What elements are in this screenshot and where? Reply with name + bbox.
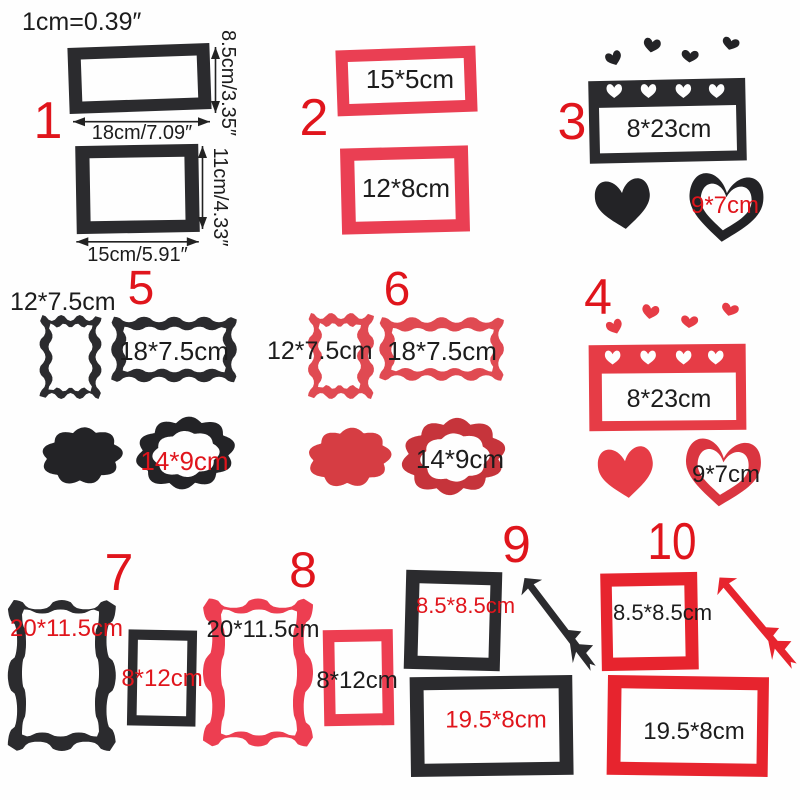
svg-text:10: 10 <box>648 513 697 571</box>
svg-text:8.5cm/3.35″: 8.5cm/3.35″ <box>217 30 239 136</box>
svg-text:8*12cm: 8*12cm <box>121 665 202 692</box>
svg-text:8.5*8.5cm: 8.5*8.5cm <box>613 600 712 625</box>
svg-text:14*9cm: 14*9cm <box>416 444 504 474</box>
svg-text:8*23cm: 8*23cm <box>627 385 712 413</box>
svg-text:19.5*8cm: 19.5*8cm <box>643 718 744 745</box>
svg-text:18cm/7.09″: 18cm/7.09″ <box>92 122 192 144</box>
svg-text:12*8cm: 12*8cm <box>362 173 450 203</box>
svg-text:9*7cm: 9*7cm <box>692 461 760 488</box>
svg-text:15*5cm: 15*5cm <box>366 64 454 94</box>
svg-text:20*11.5cm: 20*11.5cm <box>10 615 123 642</box>
svg-text:12*7.5cm: 12*7.5cm <box>10 288 116 316</box>
svg-text:9: 9 <box>502 516 531 574</box>
svg-text:8: 8 <box>289 542 317 598</box>
svg-text:14*9cm: 14*9cm <box>140 446 228 476</box>
svg-text:8*12cm: 8*12cm <box>316 667 397 694</box>
svg-text:2: 2 <box>300 89 329 147</box>
svg-text:8*23cm: 8*23cm <box>627 115 712 143</box>
svg-text:9*7cm: 9*7cm <box>691 192 759 219</box>
svg-text:8.5*8.5cm: 8.5*8.5cm <box>416 593 515 618</box>
svg-text:1cm=0.39″: 1cm=0.39″ <box>22 8 141 36</box>
svg-text:3: 3 <box>558 93 587 151</box>
svg-text:18*7.5cm: 18*7.5cm <box>387 336 497 366</box>
svg-text:20*11.5cm: 20*11.5cm <box>207 616 320 643</box>
svg-text:6: 6 <box>384 263 411 316</box>
svg-text:11cm/4.33″: 11cm/4.33″ <box>209 148 231 247</box>
svg-text:4: 4 <box>584 269 612 325</box>
svg-text:18*7.5cm: 18*7.5cm <box>119 336 229 366</box>
svg-text:7: 7 <box>105 544 134 602</box>
svg-text:12*7.5cm: 12*7.5cm <box>267 337 373 365</box>
svg-text:5: 5 <box>128 262 155 315</box>
svg-text:1: 1 <box>34 92 63 150</box>
svg-text:19.5*8cm: 19.5*8cm <box>445 707 546 734</box>
